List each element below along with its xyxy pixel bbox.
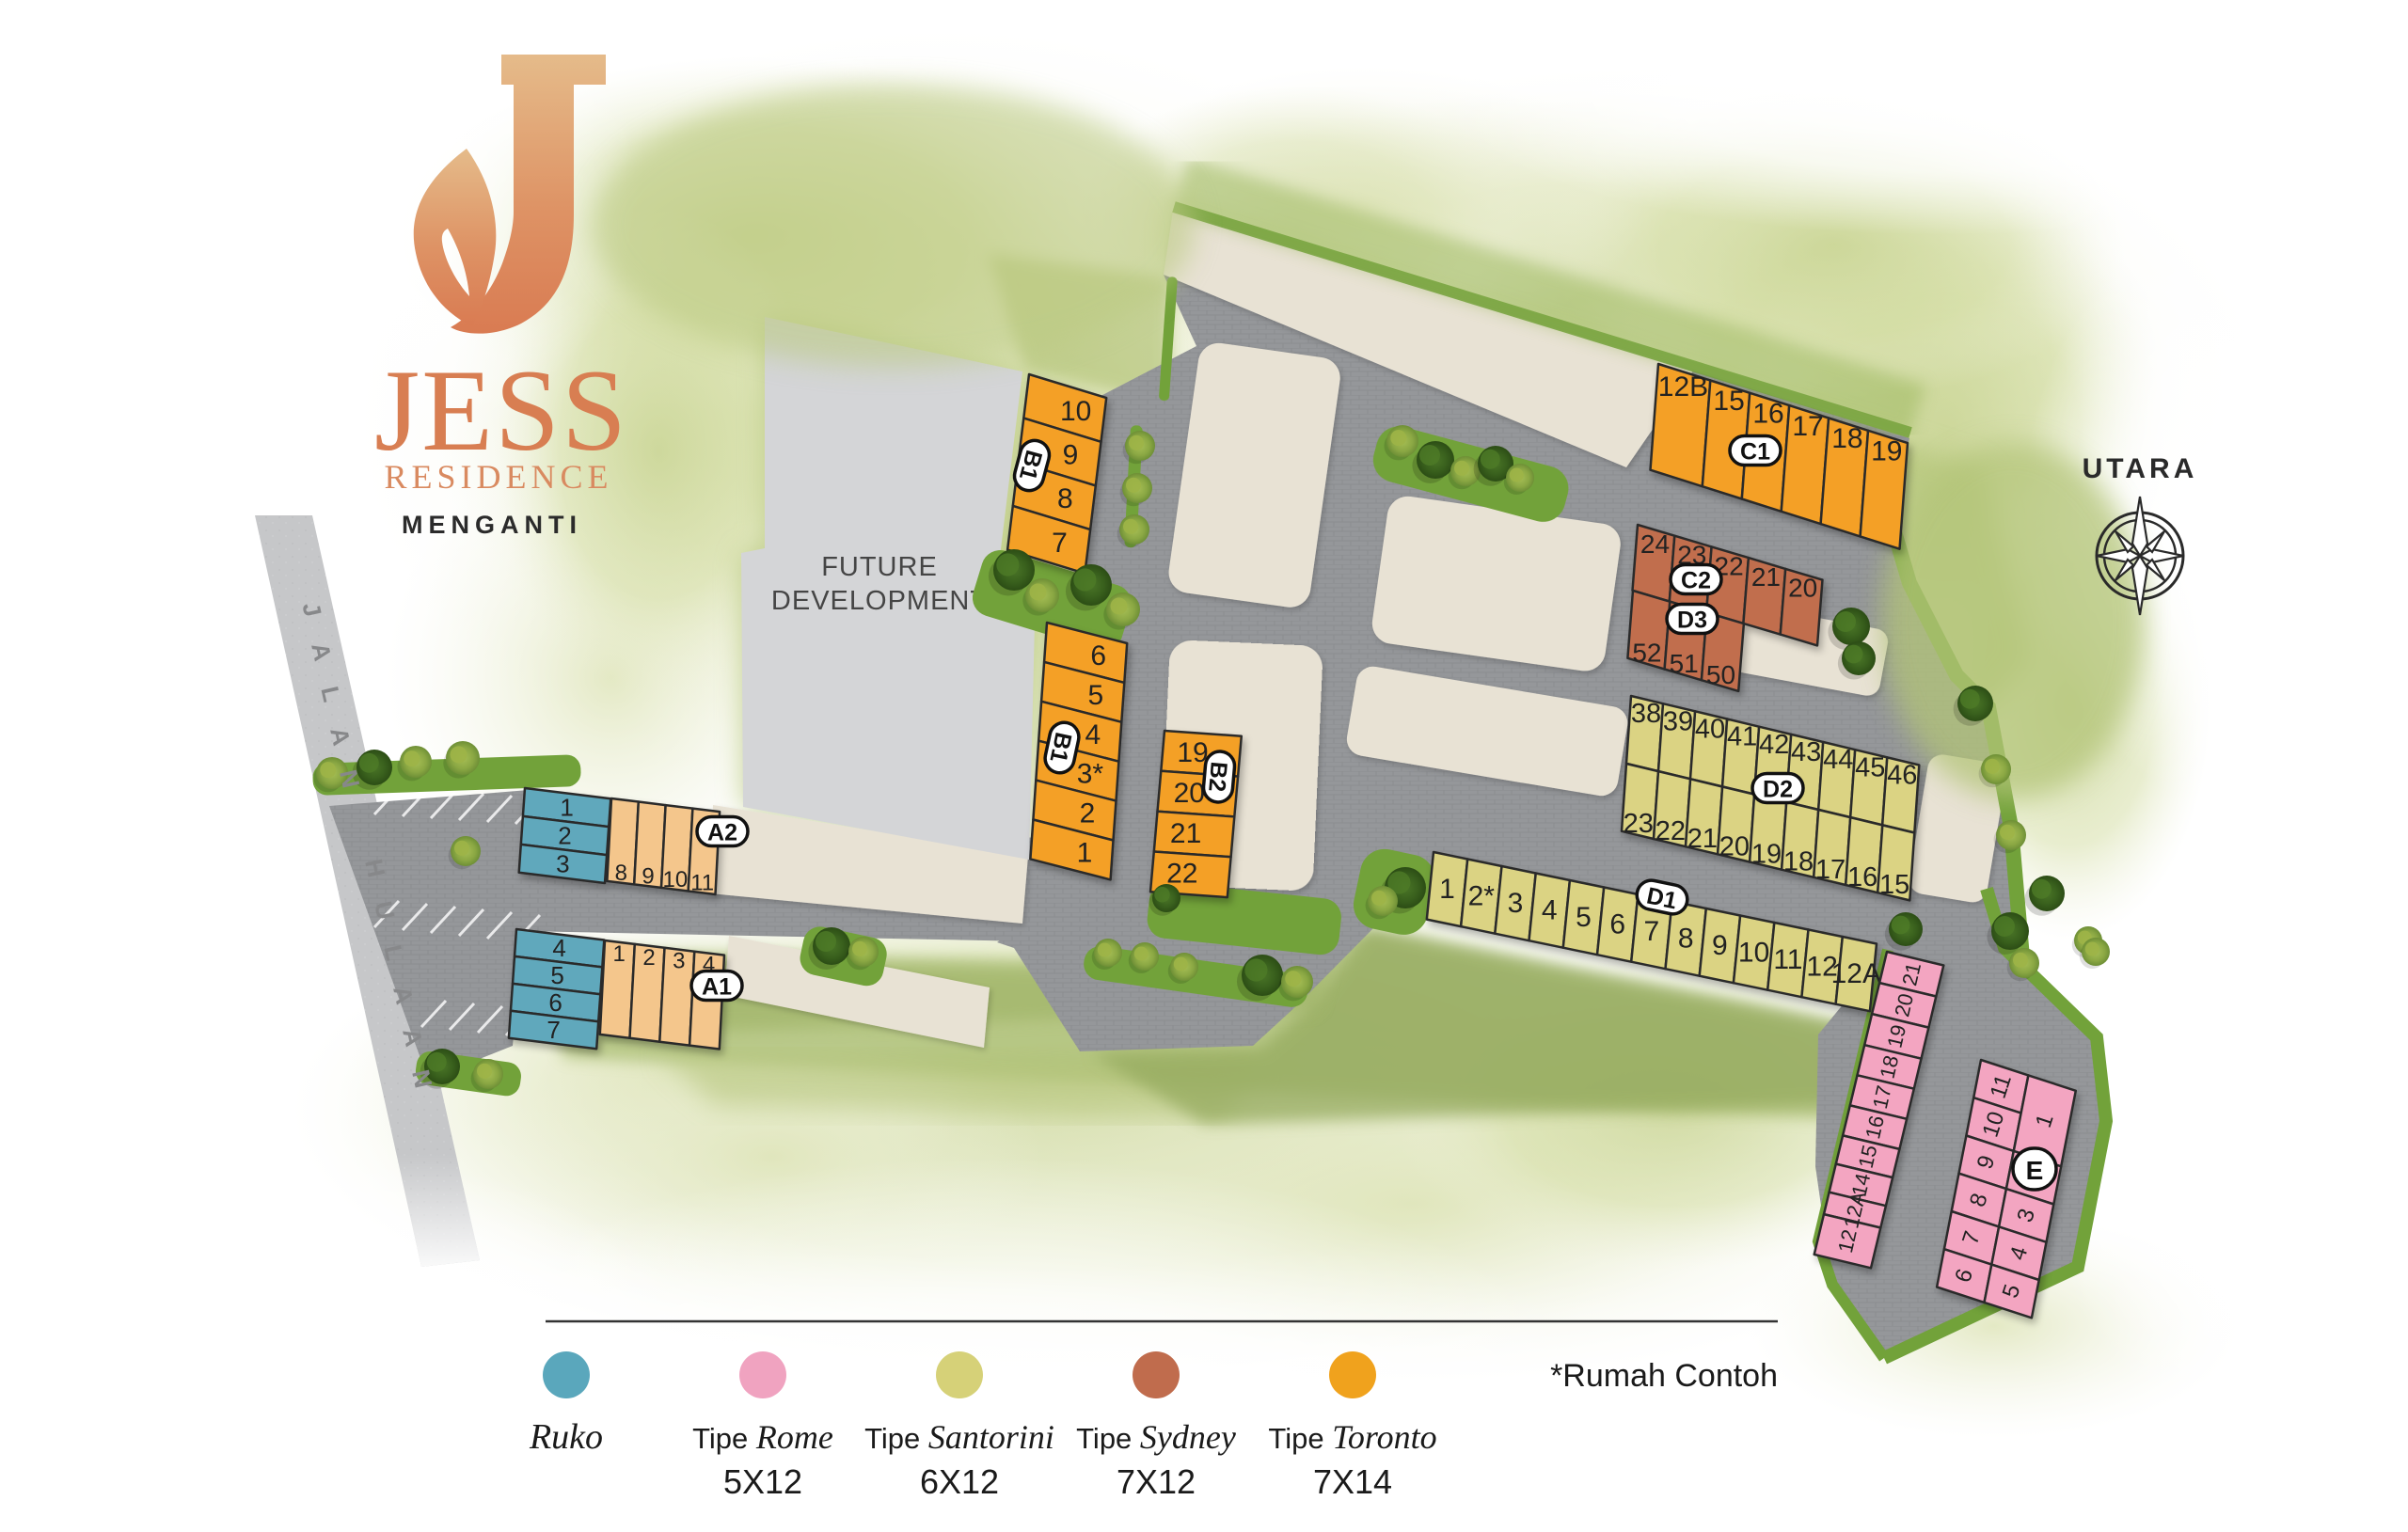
svg-text:22: 22: [1655, 816, 1686, 846]
svg-text:JESS: JESS: [374, 346, 628, 475]
svg-text:8: 8: [1057, 483, 1073, 514]
svg-text:21: 21: [1170, 818, 1201, 849]
svg-text:D2: D2: [1763, 777, 1793, 803]
svg-text:24: 24: [1640, 529, 1670, 559]
svg-text:5: 5: [1576, 902, 1592, 933]
svg-text:Tipe Toronto: Tipe Toronto: [1268, 1418, 1436, 1456]
svg-text:E: E: [2026, 1156, 2044, 1185]
svg-text:A1: A1: [702, 974, 732, 1001]
svg-text:UTARA: UTARA: [2083, 453, 2198, 484]
svg-text:8: 8: [1678, 924, 1694, 955]
svg-text:16: 16: [1752, 399, 1783, 430]
svg-text:7: 7: [547, 1016, 560, 1044]
svg-text:10: 10: [1060, 396, 1091, 427]
svg-text:51: 51: [1670, 649, 1699, 678]
svg-text:38: 38: [1631, 699, 1661, 729]
svg-text:15: 15: [1879, 870, 1909, 900]
svg-text:C2: C2: [1681, 568, 1711, 594]
svg-text:1: 1: [1077, 838, 1093, 869]
svg-text:12A: 12A: [1831, 958, 1881, 989]
svg-text:45: 45: [1855, 752, 1885, 782]
svg-text:21: 21: [1751, 562, 1781, 592]
svg-text:43: 43: [1791, 737, 1821, 767]
svg-text:7: 7: [1644, 916, 1660, 947]
svg-text:40: 40: [1695, 715, 1725, 745]
svg-text:7: 7: [1052, 528, 1068, 559]
svg-text:16: 16: [1847, 862, 1877, 892]
svg-text:2: 2: [1080, 798, 1096, 829]
svg-text:11: 11: [690, 871, 714, 896]
svg-text:19: 19: [1871, 436, 1902, 467]
svg-text:3*: 3*: [1077, 759, 1104, 790]
svg-text:DEVELOPMENT: DEVELOPMENT: [771, 586, 988, 616]
svg-text:10: 10: [663, 867, 689, 892]
svg-text:12B: 12B: [1658, 371, 1708, 403]
svg-text:10: 10: [1738, 938, 1769, 969]
svg-text:39: 39: [1663, 706, 1693, 736]
svg-text:6: 6: [1090, 640, 1106, 671]
svg-text:1: 1: [613, 941, 626, 967]
svg-text:19: 19: [1177, 737, 1208, 768]
svg-text:23: 23: [1624, 809, 1654, 839]
svg-text:RESIDENCE: RESIDENCE: [385, 458, 613, 496]
svg-text:44: 44: [1823, 745, 1853, 775]
svg-text:52: 52: [1632, 638, 1661, 667]
svg-text:17: 17: [1792, 411, 1823, 442]
svg-text:4: 4: [1085, 719, 1101, 750]
svg-text:Ruko: Ruko: [529, 1417, 603, 1457]
svg-text:MENGANTI: MENGANTI: [402, 511, 582, 539]
svg-text:5X12: 5X12: [723, 1462, 802, 1501]
svg-text:11: 11: [1773, 944, 1802, 975]
svg-text:22: 22: [1166, 859, 1197, 890]
svg-text:3: 3: [673, 949, 685, 974]
svg-text:*Rumah Contoh: *Rumah Contoh: [1550, 1358, 1778, 1394]
svg-text:C1: C1: [1740, 439, 1770, 466]
svg-text:6X12: 6X12: [920, 1462, 999, 1501]
svg-text:21: 21: [1687, 824, 1718, 854]
svg-text:42: 42: [1759, 730, 1789, 760]
svg-text:5: 5: [550, 961, 563, 989]
svg-text:18: 18: [1831, 423, 1862, 454]
svg-text:4: 4: [1542, 895, 1558, 926]
svg-text:1: 1: [1439, 874, 1455, 905]
svg-text:50: 50: [1706, 660, 1735, 689]
svg-text:FUTURE: FUTURE: [821, 552, 938, 582]
svg-text:2: 2: [642, 945, 655, 971]
svg-text:3: 3: [1508, 888, 1524, 919]
svg-text:7X14: 7X14: [1313, 1462, 1392, 1501]
svg-text:D3: D3: [1677, 608, 1707, 634]
svg-text:4: 4: [552, 934, 565, 962]
svg-text:8: 8: [615, 861, 627, 886]
svg-text:3: 3: [556, 849, 569, 877]
svg-text:15: 15: [1713, 386, 1744, 417]
svg-text:41: 41: [1727, 722, 1757, 752]
svg-text:B2: B2: [1203, 761, 1232, 793]
svg-text:1: 1: [560, 794, 573, 822]
svg-text:20: 20: [1788, 574, 1817, 603]
svg-text:6: 6: [548, 988, 562, 1017]
svg-text:Tipe Santorini: Tipe Santorini: [864, 1418, 1054, 1456]
svg-text:9: 9: [1712, 930, 1728, 961]
svg-text:9: 9: [1063, 440, 1079, 471]
svg-text:6: 6: [1609, 909, 1625, 940]
svg-text:17: 17: [1815, 855, 1846, 885]
svg-text:18: 18: [1783, 847, 1814, 877]
svg-text:20: 20: [1174, 778, 1205, 809]
svg-text:Tipe Sydney: Tipe Sydney: [1076, 1418, 1236, 1456]
svg-text:Tipe Rome: Tipe Rome: [692, 1418, 833, 1456]
svg-text:9: 9: [642, 864, 654, 890]
svg-text:7X12: 7X12: [1117, 1462, 1196, 1501]
svg-text:2: 2: [558, 822, 571, 850]
svg-text:A2: A2: [707, 820, 737, 846]
svg-text:5: 5: [1087, 680, 1103, 711]
svg-text:46: 46: [1887, 761, 1917, 791]
svg-text:2*: 2*: [1468, 881, 1496, 912]
svg-text:19: 19: [1751, 839, 1782, 869]
svg-text:20: 20: [1719, 831, 1750, 861]
